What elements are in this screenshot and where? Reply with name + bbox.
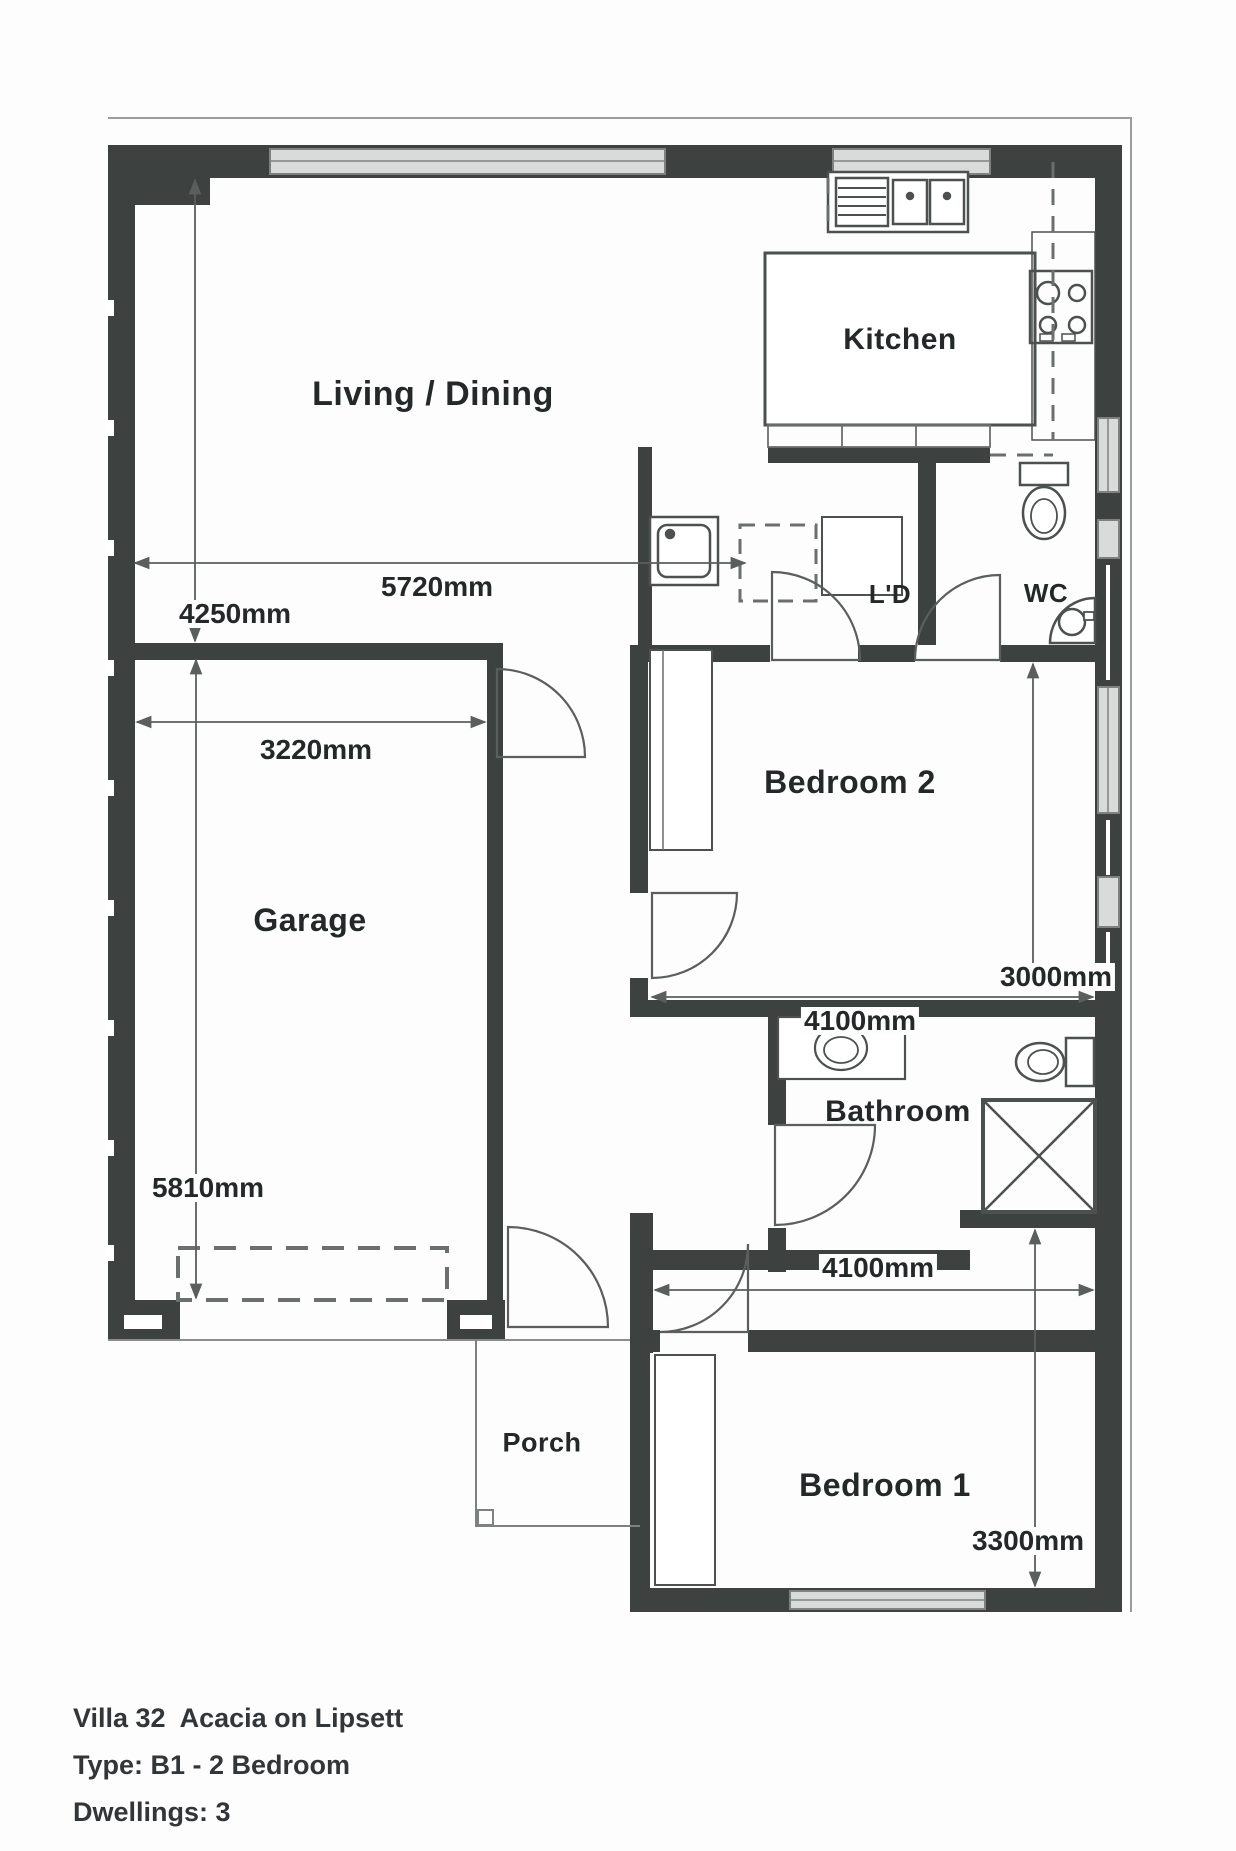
- kitchen-pantry-units: [768, 425, 990, 447]
- room-label-living-dining: Living / Dining: [312, 377, 554, 411]
- garage-door-dashed: [178, 1248, 447, 1300]
- room-label-wc: WC: [1024, 580, 1068, 606]
- floor-plan-page: Living / Dining Kitchen L'D WC Bedroom 2…: [0, 0, 1236, 1851]
- room-label-bedroom1: Bedroom 1: [799, 1469, 971, 1501]
- room-label-laundry: L'D: [869, 581, 911, 607]
- room-label-bedroom2: Bedroom 2: [764, 766, 936, 798]
- dim-bedroom2-depth: 3000mm: [997, 963, 1115, 991]
- dim-bedroom1-depth: 3300mm: [969, 1527, 1087, 1555]
- door-arc-front-entry: [508, 1227, 608, 1327]
- bathroom-toilet: [1016, 1038, 1094, 1086]
- kitchen-sink: [828, 172, 968, 232]
- dim-hall-width: 4100mm: [819, 1254, 937, 1282]
- kitchen-cooktop: [1030, 232, 1095, 440]
- dim-garage-depth: 5810mm: [149, 1174, 267, 1202]
- dim-bedroom2-width: 4100mm: [801, 1007, 919, 1035]
- dim-living-width: 5720mm: [378, 573, 496, 601]
- footer-villa-title: Villa 32 Acacia on Lipsett: [73, 1705, 403, 1732]
- door-arc-bedroom2: [652, 893, 737, 978]
- washing-machine-dashed: [740, 525, 816, 601]
- room-label-garage: Garage: [253, 904, 366, 936]
- door-arc-bathroom: [775, 1125, 875, 1225]
- wardrobe-bedroom1: [655, 1355, 715, 1585]
- dim-garage-width: 3220mm: [257, 736, 375, 764]
- dim-living-depth: 4250mm: [176, 600, 294, 628]
- room-label-porch: Porch: [502, 1430, 581, 1457]
- footer-type: Type: B1 - 2 Bedroom: [73, 1752, 350, 1779]
- floor-plan-drawing: [0, 0, 1236, 1851]
- doors: [497, 572, 1000, 1332]
- room-label-bathroom: Bathroom: [825, 1097, 971, 1127]
- shower: [983, 1100, 1095, 1212]
- footer-dwellings: Dwellings: 3: [73, 1799, 231, 1826]
- door-arc-hall-living: [497, 669, 585, 757]
- wardrobe-bedroom2: [650, 650, 712, 850]
- laundry-tub: [650, 517, 718, 585]
- wc-toilet: [1020, 463, 1068, 539]
- room-label-kitchen: Kitchen: [843, 325, 957, 355]
